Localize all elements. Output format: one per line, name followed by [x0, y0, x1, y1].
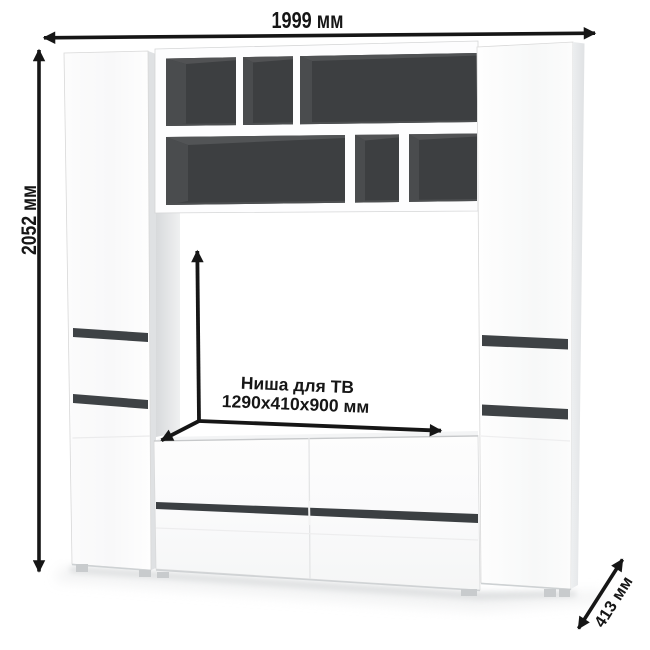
svg-text:1999 мм: 1999 мм	[272, 7, 344, 33]
svg-text:2052 мм: 2052 мм	[18, 185, 41, 255]
